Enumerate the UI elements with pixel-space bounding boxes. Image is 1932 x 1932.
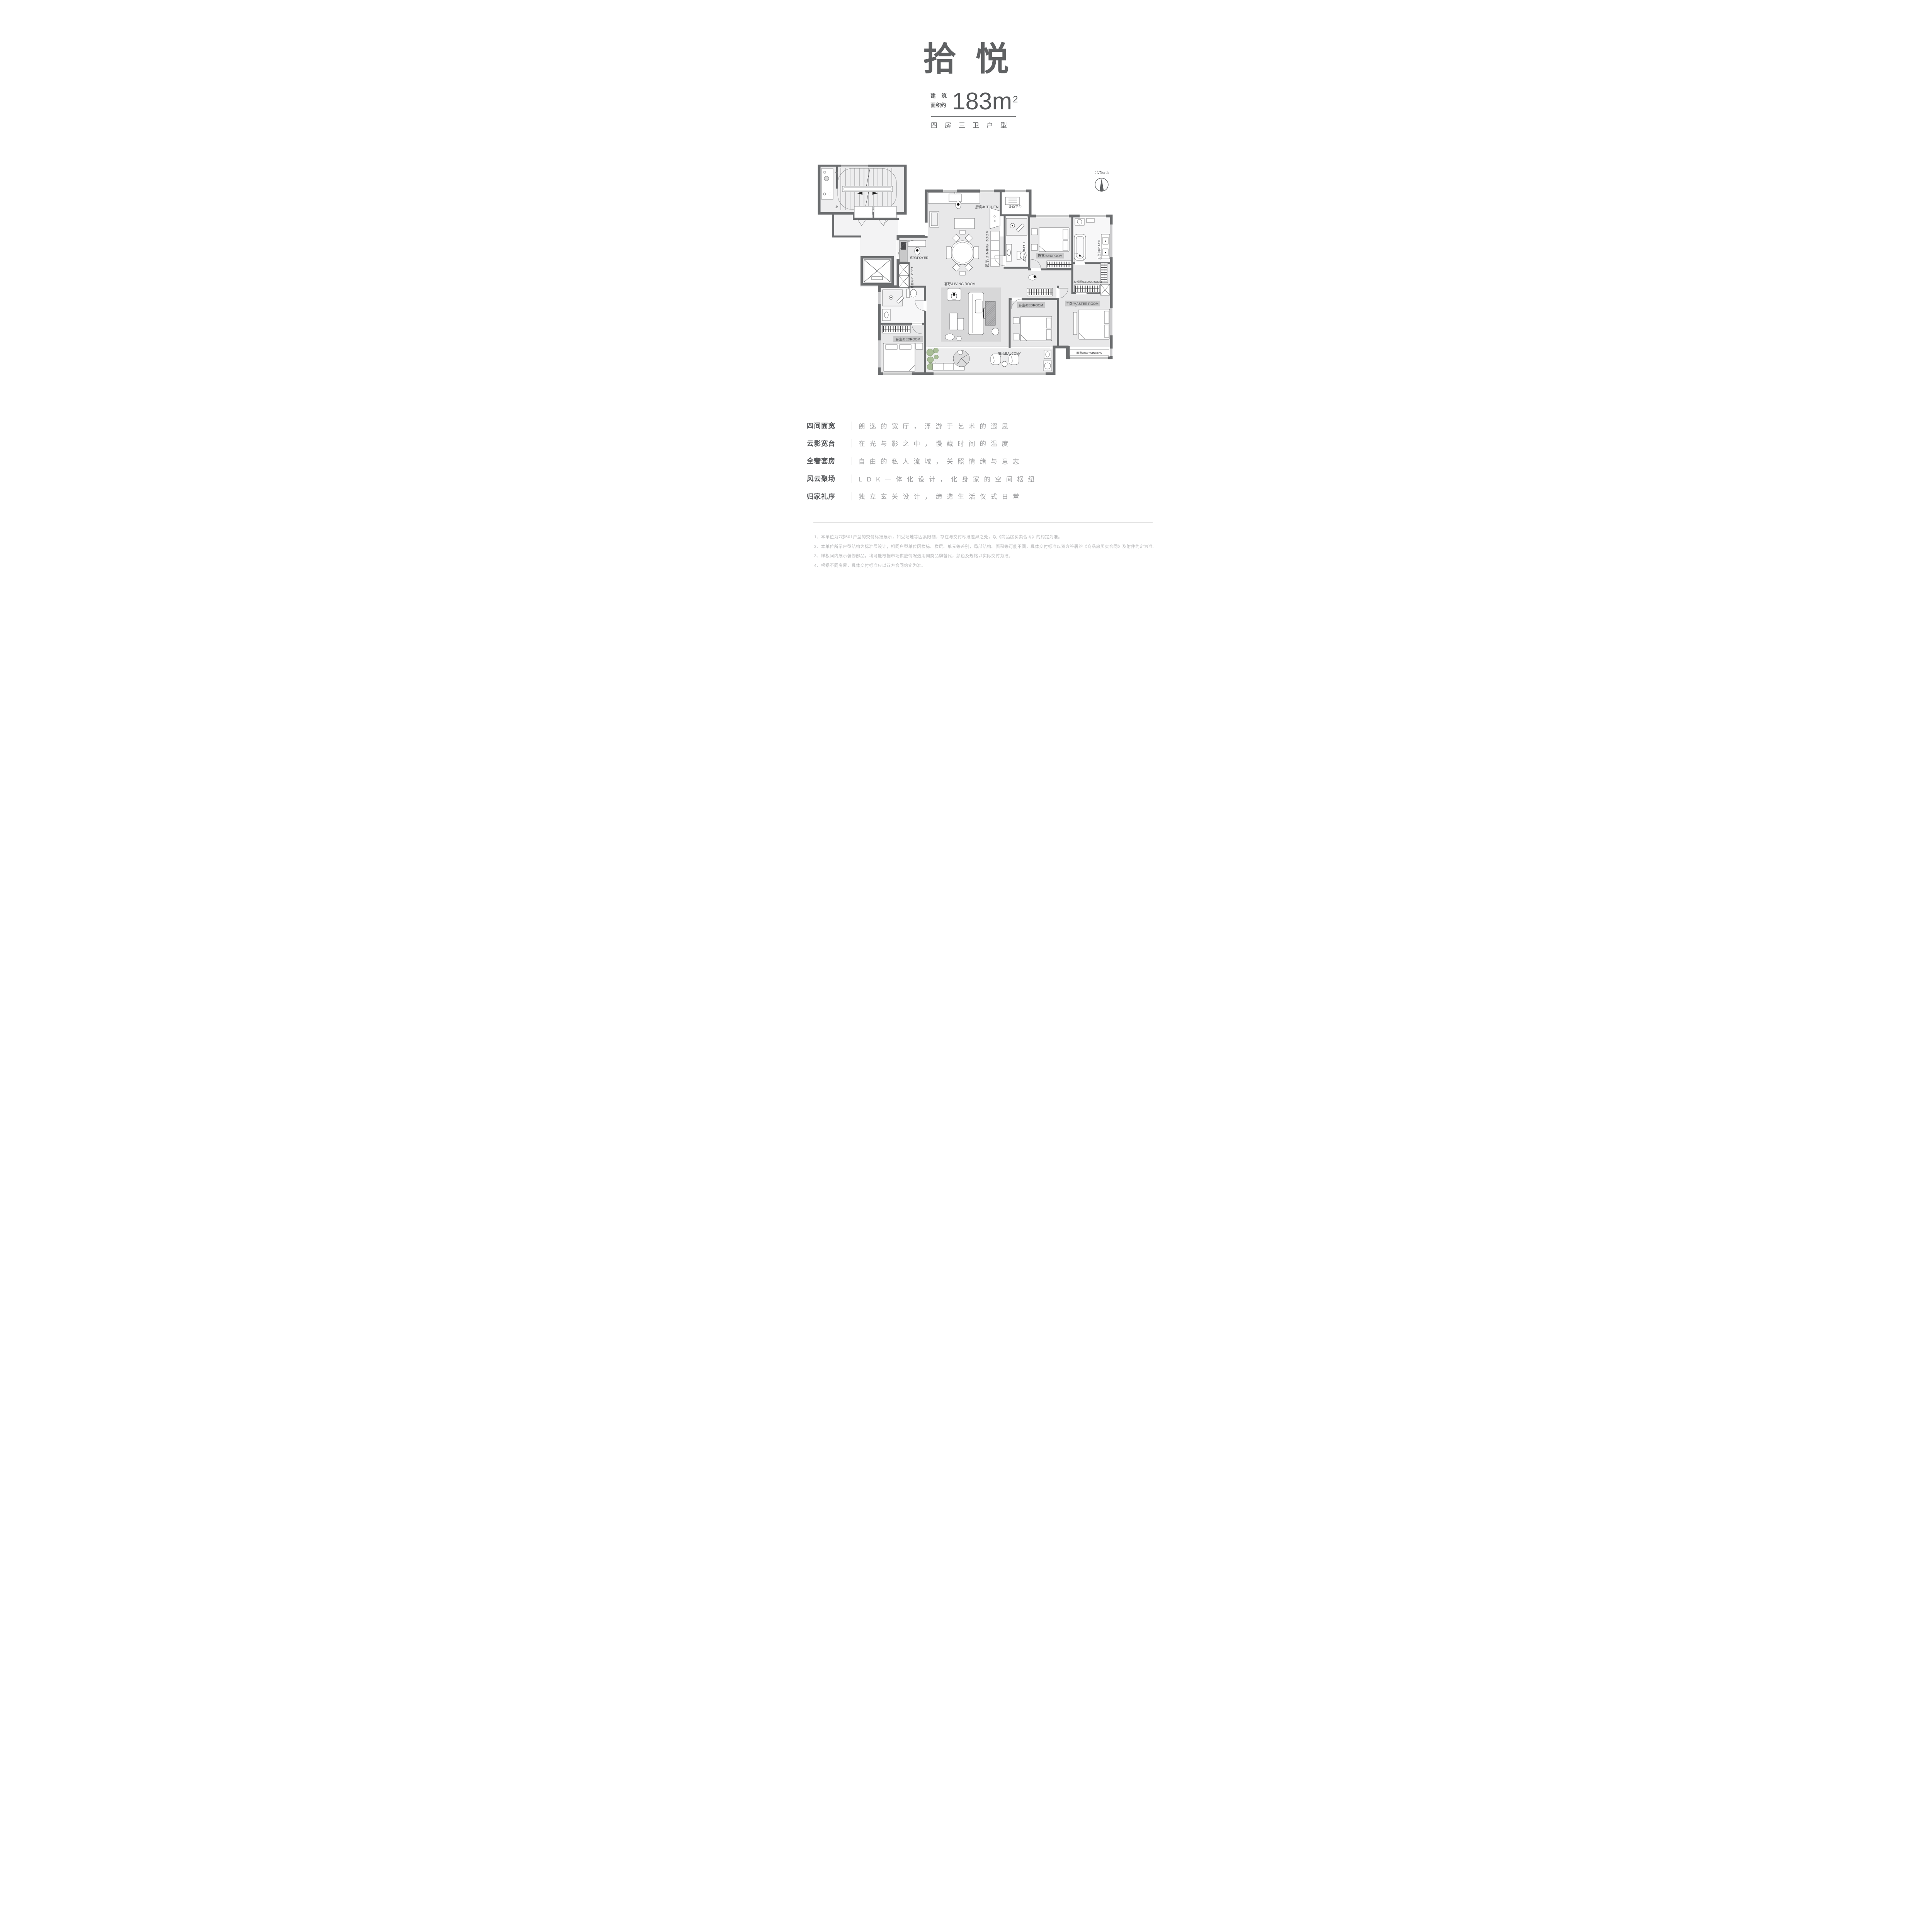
feature-separator — [852, 422, 852, 430]
footnote-divider — [813, 522, 1153, 523]
wardrobe-mid-bedroom — [1027, 288, 1053, 296]
feature-separator — [852, 492, 852, 500]
label-dining: 餐厅/DINING ROOM — [985, 230, 989, 268]
feature-separator — [852, 457, 852, 465]
north-label: 北/North — [1095, 170, 1109, 175]
nightstand — [1013, 318, 1019, 324]
label-living: 客厅/LIVING ROOM — [944, 282, 976, 286]
label-master: 主卧/MASTER ROOM — [1066, 302, 1099, 306]
floor-plan: 下 上 — [814, 165, 1122, 381]
feature-row: 归家礼序 独立玄关设计，缔造生活仪式日常 — [807, 487, 1031, 505]
pillow — [1046, 330, 1051, 340]
area-number: 183 — [952, 88, 992, 115]
pillow — [1104, 311, 1109, 323]
sofa-blanket — [975, 300, 982, 313]
dining-chair — [960, 230, 965, 234]
pillow — [1046, 318, 1051, 328]
master-bench — [1073, 312, 1077, 335]
foyer-bench — [908, 240, 926, 247]
feature-label: 风云聚场 — [807, 474, 835, 483]
feature-text: 朗逸的宽厅，浮游于艺术的遐思 — [859, 421, 1013, 430]
label-bath-mid: 卫生间/BATH — [1022, 242, 1026, 262]
area-block: 建筑 面积约 183m2 — [930, 88, 1018, 113]
page-title: 拾悦 — [773, 43, 1159, 76]
label-kitchen: 厨房/KITCHEN — [975, 205, 998, 209]
nightstand — [1031, 244, 1037, 250]
pillow — [1104, 325, 1109, 337]
footnote-line: 2、本单位所示户型结构为标准层设计，相同户型单位因楼栋、楼层、单元等差别，局部结… — [814, 542, 1154, 552]
header-divider — [931, 116, 1016, 117]
area-prefix-char: 筑 — [942, 92, 947, 101]
kitchen-sink — [949, 194, 961, 202]
pillow — [1063, 229, 1068, 239]
feature-label: 全奢套房 — [807, 456, 835, 466]
north-needle — [1100, 179, 1104, 191]
north-indicator: 北/North — [1095, 170, 1109, 191]
footnote-line: 1、本单位为7栋501户型的交付标准展示，如受场地等因素限制，存在与交付标准差异… — [814, 532, 1154, 542]
stairs-up-label: 上 — [835, 205, 838, 209]
kitchen-island — [990, 208, 1000, 229]
area-prefix: 建筑 面积约 — [930, 92, 947, 110]
footnote-line: 3、样板间内展示装修部品，均可能根据市场供应情况选用同类品牌替代，颜色及规格以实… — [814, 551, 1154, 561]
stairs-down-label: 下 — [835, 172, 838, 175]
sofa — [968, 292, 984, 335]
label-equipment: 设备平台 — [1009, 205, 1022, 209]
coffee-table — [957, 318, 964, 330]
nightstand — [916, 343, 923, 349]
cloak-xbox — [1100, 284, 1110, 295]
feature-text: 在光与影之中，慢藏时间的温度 — [859, 439, 1013, 448]
lobby-door-left — [854, 206, 872, 218]
stair-landing — [842, 186, 893, 192]
nightstand — [1031, 229, 1037, 235]
feature-list: 四间面宽 朗逸的宽厅，浮游于艺术的遐思 云影宽台 在光与影之中，慢藏时间的温度 … — [807, 417, 1031, 505]
elevator-shaft — [864, 260, 890, 282]
kitchen-faucet — [954, 192, 956, 194]
pillow — [886, 345, 897, 349]
layout-type-line: 四房三卫户型 — [931, 120, 1014, 129]
lobby-door-right — [874, 206, 896, 218]
feature-label: 云影宽台 — [807, 439, 835, 448]
stool — [957, 336, 961, 341]
label-balcony: 阳台/BALCONY — [998, 352, 1021, 355]
label-bedroom-mid: 卧室/BEDROOM — [1019, 303, 1043, 307]
feature-row: 四间面宽 朗逸的宽厅，浮游于艺术的遐思 — [807, 417, 1031, 435]
label-bedroom-left: 卧室/BEDROOM — [896, 337, 920, 341]
floor-cushion — [945, 334, 954, 340]
label-closet: 储物间/CLOSET — [910, 267, 914, 288]
wardrobe-top-bedroom — [1047, 261, 1071, 268]
label-cloakroom: 衣帽间/CLOAKROOM — [1073, 280, 1102, 284]
cloak-rail-vertical — [1100, 263, 1108, 282]
feature-row: 风云聚场 LDK一体化设计，化身家的空间枢纽 — [807, 470, 1031, 488]
feature-separator — [852, 439, 852, 447]
parasol-table — [953, 350, 969, 367]
area-superscript: 2 — [1013, 94, 1018, 105]
area-prefix-char: 建 — [930, 92, 936, 101]
feature-label: 四间面宽 — [807, 421, 835, 430]
shower-mid — [1006, 218, 1027, 235]
coffee-table — [950, 313, 957, 330]
feature-separator — [852, 474, 852, 483]
side-table — [992, 328, 999, 335]
feature-row: 云影宽台 在光与影之中，慢藏时间的温度 — [807, 435, 1031, 452]
cloak-rail-horizontal — [1075, 285, 1099, 293]
label-bedroom-top: 卧室/BEDROOM — [1038, 254, 1062, 258]
kitchen-table — [954, 218, 975, 229]
pillow — [900, 345, 911, 349]
nightstand — [1013, 334, 1019, 340]
person-icon — [956, 201, 961, 209]
room-equipment — [1005, 197, 1019, 205]
label-bath-right: 卫生间/BATH — [1097, 240, 1101, 260]
person-icon — [915, 247, 920, 255]
feature-label: 归家礼序 — [807, 492, 835, 501]
armchair — [947, 288, 961, 301]
footnote-line: 4、根据不同房屋，具体交付标准应以双方合同约定为准。 — [814, 561, 1154, 571]
feature-text: 独立玄关设计，缔造生活仪式日常 — [859, 492, 1024, 501]
feature-row: 全奢套房 自由的私人流域，关照情绪与意志 — [807, 452, 1031, 470]
wardrobe-left-bedroom — [883, 325, 910, 333]
area-unit: m — [992, 88, 1012, 115]
label-bay-window: 飘窗/BAY WINDOW — [1077, 351, 1102, 355]
dining-chair — [974, 247, 979, 259]
sideboard — [991, 231, 999, 267]
dining-chair — [960, 271, 965, 275]
stair-side-room — [821, 168, 833, 199]
dining-chair — [946, 247, 951, 259]
person-icon — [1029, 275, 1036, 280]
feature-text: LDK一体化设计，化身家的空间枢纽 — [859, 474, 1039, 483]
area-prefix-line2: 面积约 — [930, 101, 946, 110]
bath-shelf — [1087, 218, 1094, 223]
area-value: 183m2 — [952, 88, 1018, 113]
feature-text: 自由的私人流域，关照情绪与意志 — [859, 456, 1024, 466]
toilet3 — [906, 289, 917, 298]
footnotes: 1、本单位为7栋501户型的交付标准展示，如受场地等因素限制，存在与交付标准差异… — [814, 532, 1154, 570]
pillow — [1063, 241, 1068, 251]
label-foyer: 玄关/FOYER — [910, 256, 929, 260]
